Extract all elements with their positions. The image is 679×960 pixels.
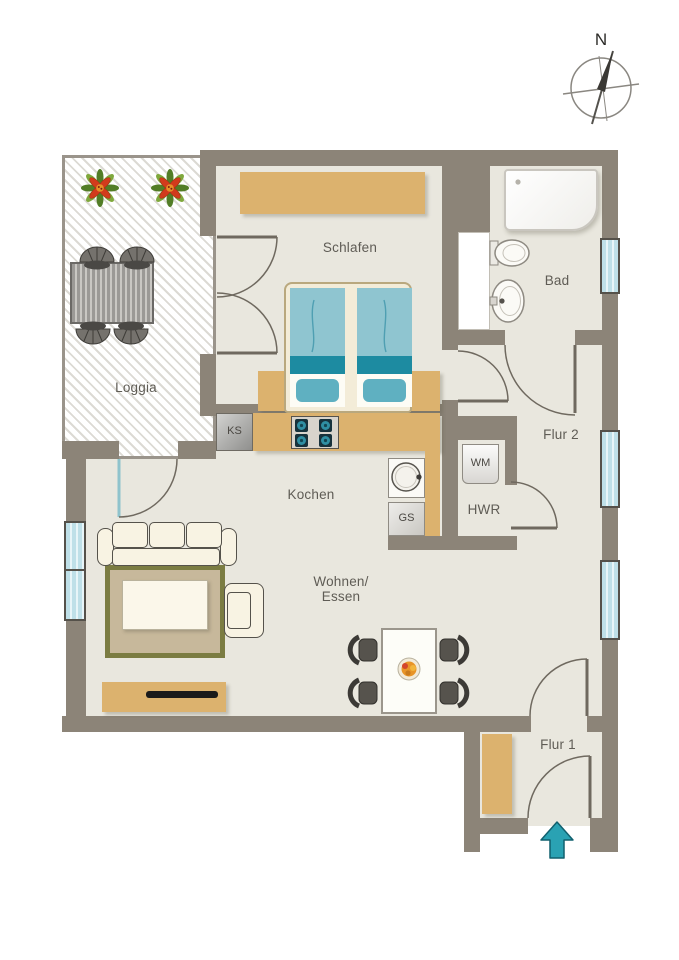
floor-plan: Schlafen Bad Loggia Flur 2 Kochen HWR Wo… (0, 0, 679, 960)
kitchen-sink-basin (392, 463, 422, 491)
door-bad (505, 345, 575, 415)
door-schlafen-flur2 (458, 351, 508, 401)
bed-fold-lines (312, 300, 386, 352)
compass-north-label: N (595, 30, 607, 49)
loggia-chairs (76, 247, 154, 344)
door-schlafen-loggia (217, 237, 277, 353)
dining-chair (440, 680, 467, 706)
door-entry (528, 756, 590, 818)
door-loggia-living (119, 459, 177, 517)
toilet (490, 240, 529, 266)
door-hwr (511, 482, 557, 528)
door-living-flur1 (530, 659, 587, 716)
flower-pot (81, 169, 119, 207)
loggia-chair (80, 247, 114, 270)
loggia-chair (120, 247, 154, 270)
flower-pots (81, 169, 189, 207)
dining-chair (440, 637, 467, 663)
dining-chair (350, 637, 377, 663)
bathroom-sink (490, 280, 524, 322)
overlay-graphics: N (0, 0, 679, 960)
shower-drain (515, 179, 520, 184)
dining-chair (350, 680, 377, 706)
fruit-bowl (398, 658, 420, 680)
compass: N (563, 30, 639, 124)
loggia-chair (76, 322, 110, 345)
flower-pot (151, 169, 189, 207)
entry-arrow (541, 822, 573, 858)
loggia-chair (114, 322, 148, 345)
cooktop-burners (295, 419, 332, 447)
